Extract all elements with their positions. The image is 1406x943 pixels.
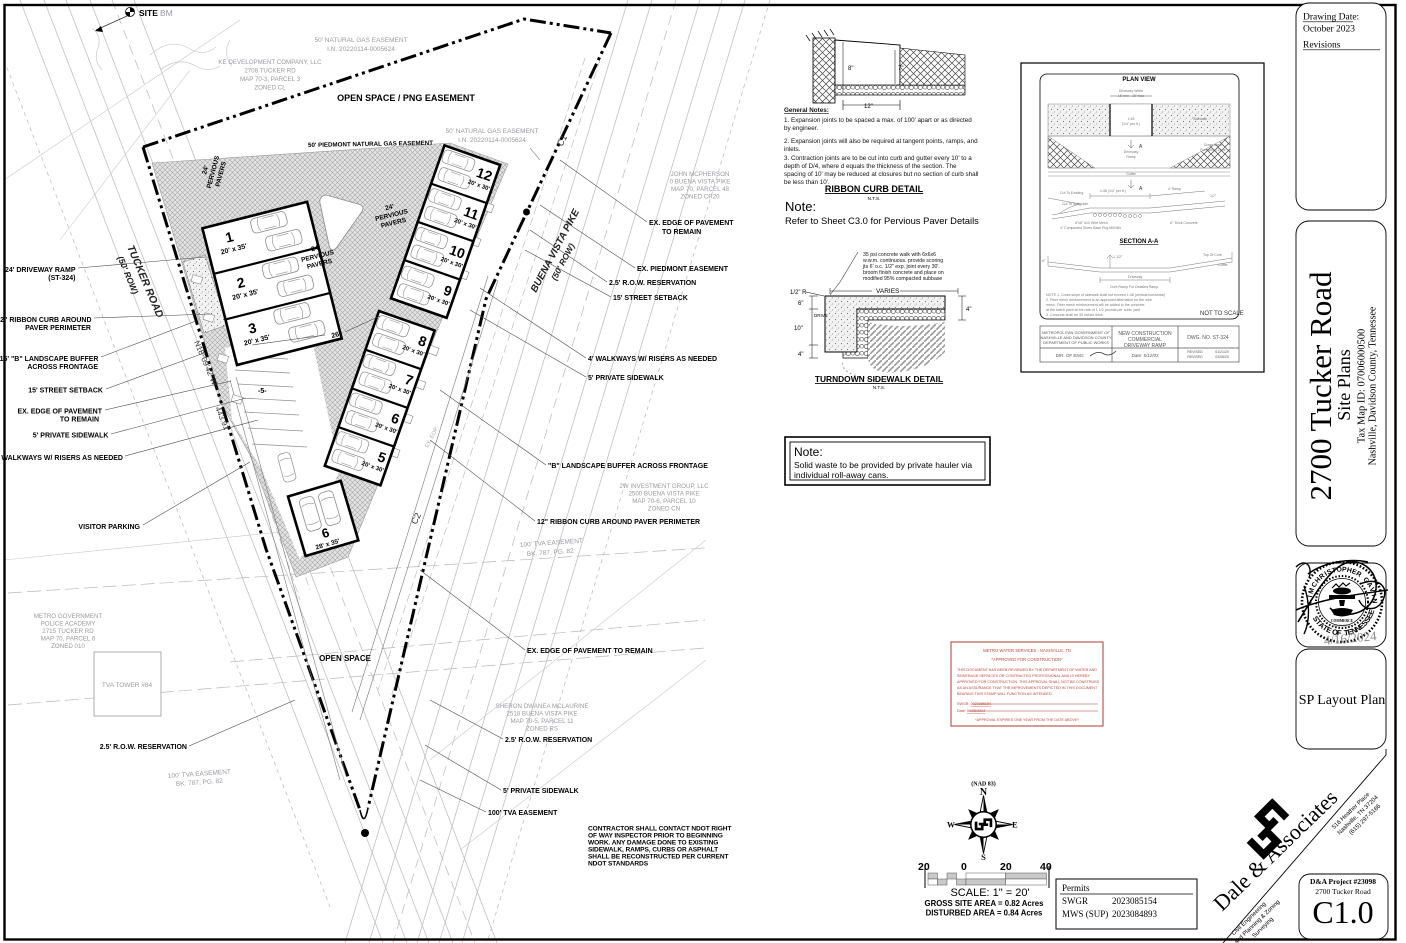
svg-text:OPEN SPACE / PNG EASEMENT: OPEN SPACE / PNG EASEMENT	[337, 93, 475, 103]
svg-text:-5-: -5-	[258, 388, 267, 395]
svg-text:individual roll-away cans.: individual roll-away cans.	[794, 470, 889, 480]
svg-text:4' WALKWAYS W/ RISERS AS NEEDE: 4' WALKWAYS W/ RISERS AS NEEDED	[588, 356, 717, 363]
svg-text:2. Fiber mesh reinforcement i: 2. Fiber mesh reinforcement is an approv…	[1046, 298, 1152, 302]
svg-text:MAP 70-6, PARCEL 10: MAP 70-6, PARCEL 10	[632, 498, 696, 505]
svg-text:AS AN ASSURANCE THAT THE IMPRO: AS AN ASSURANCE THAT THE IMPROVEMENTS DE…	[957, 686, 1098, 690]
svg-text:1/2": 1/2"	[1210, 194, 1217, 198]
svg-text:spacing of 10' may be reduced: spacing of 10' may be reduced at closure…	[784, 171, 978, 178]
svg-text:2.5' R.O.W. RESERVATION: 2.5' R.O.W. RESERVATION	[100, 744, 187, 751]
svg-text:DRIVEWAY RAMP: DRIVEWAY RAMP	[1124, 343, 1167, 349]
svg-text:2.5' R.O.W. RESERVATION: 2.5' R.O.W. RESERVATION	[609, 280, 696, 287]
svg-text:SHERON DWANEA MCLAURINE: SHERON DWANEA MCLAURINE	[496, 703, 589, 710]
svg-text:I.N. 20220114-0005624: I.N. 20220114-0005624	[327, 46, 395, 53]
svg-text:BM: BM	[160, 8, 173, 18]
svg-text:C1.0: C1.0	[1312, 894, 1373, 930]
svg-text:Driveway Width: Driveway Width	[1119, 89, 1143, 93]
svg-text:12" RIBBON CURB AROUND: 12" RIBBON CURB AROUND	[0, 317, 92, 324]
svg-text:MWS (SUP): MWS (SUP)	[1062, 909, 1108, 919]
svg-text:I.N. 20220114-0005624: I.N. 20220114-0005624	[458, 137, 526, 144]
svg-text:COMMERCE: COMMERCE	[1331, 619, 1354, 623]
svg-text:DIR. OF ENG:: DIR. OF ENG:	[1056, 353, 1085, 358]
svg-text:2023085154: 2023085154	[1112, 896, 1158, 906]
svg-text:JOHN MCPHERSON: JOHN MCPHERSON	[671, 171, 730, 178]
svg-text:Tax Map ID: 07006000500: Tax Map ID: 07006000500	[1357, 329, 1368, 443]
svg-text:THIS DOCUMENT HAS BEEN REVIEWE: THIS DOCUMENT HAS BEEN REVIEWED BY THE D…	[957, 668, 1097, 672]
svg-text:E: E	[1012, 820, 1018, 830]
svg-text:Revisions: Revisions	[1303, 41, 1341, 51]
svg-text:METRO GOVERNMENT: METRO GOVERNMENT	[34, 613, 103, 620]
svg-text:TVA TOWER #84: TVA TOWER #84	[102, 682, 153, 689]
svg-text:15' STREET SETBACK: 15' STREET SETBACK	[28, 388, 103, 395]
svg-text:N.T.S.: N.T.S.	[867, 196, 880, 202]
svg-text:Date: 5/12/03: Date: 5/12/03	[1131, 353, 1159, 358]
svg-text:GROSS SITE AREA = 0.82 Acres: GROSS SITE AREA = 0.82 Acres	[925, 899, 1045, 908]
svg-text:ACROSS FRONTAGE: ACROSS FRONTAGE	[27, 364, 98, 371]
svg-text:50' NATURAL GAS EASEMENT: 50' NATURAL GAS EASEMENT	[446, 128, 539, 135]
svg-text:October 2023: October 2023	[1303, 25, 1355, 35]
svg-text:KE DEVELOPMENT COMPANY, LLC: KE DEVELOPMENT COMPANY, LLC	[218, 59, 322, 66]
svg-text:mesh. Fiber mesh reinforcemen: mesh. Fiber mesh reinforcement will be a…	[1046, 303, 1144, 307]
svg-text:EX. EDGE OF PAVEMENT TO REMAIN: EX. EDGE OF PAVEMENT TO REMAIN	[527, 648, 653, 655]
svg-text:METRO WATER SERVICES - NASHVIL: METRO WATER SERVICES - NASHVILLE, TN	[983, 648, 1071, 653]
svg-text:Curb Ramp For Detailed Ramp: Curb Ramp For Detailed Ramp	[1110, 285, 1158, 289]
svg-text:DWG. NO. ST-324: DWG. NO. ST-324	[1187, 335, 1229, 341]
svg-text:by engineer.: by engineer.	[784, 125, 819, 132]
svg-text:50' NATURAL GAS EASEMENT: 50' NATURAL GAS EASEMENT	[315, 37, 408, 44]
svg-text:2. Expansion joints will also: 2. Expansion joints will also be require…	[784, 138, 978, 145]
svg-text:POLICE ACADEMY: POLICE ACADEMY	[41, 621, 96, 628]
svg-text:2518 BUENA VISTA PIKE: 2518 BUENA VISTA PIKE	[506, 711, 577, 718]
svg-text:WORK. ANY DAMAGE DONE TO EXIST: WORK. ANY DAMAGE DONE TO EXISTING	[588, 840, 718, 847]
svg-text:Cut To Subgrade: Cut To Subgrade	[1062, 202, 1088, 206]
svg-text:100' TVA EASEMENT: 100' TVA EASEMENT	[488, 810, 558, 817]
svg-text:5' PRIVATE SIDEWALK: 5' PRIVATE SIDEWALK	[588, 375, 664, 382]
svg-text:4": 4"	[966, 307, 971, 313]
svg-text:NOTE 1. Cross slope of sidew: NOTE 1. Cross slope of sidewalk shall no…	[1046, 293, 1165, 297]
svg-text:Sidewalk: Sidewalk	[1193, 117, 1207, 121]
svg-text:Top Of Curb: Top Of Curb	[1203, 253, 1222, 257]
svg-text:NDOT STANDARDS: NDOT STANDARDS	[588, 861, 649, 868]
svg-text:5' PRIVATE SIDEWALK: 5' PRIVATE SIDEWALK	[33, 433, 109, 440]
svg-text:6"x6" #10 Wire Mesh: 6"x6" #10 Wire Mesh	[1075, 221, 1108, 225]
svg-text:1/2" R: 1/2" R	[790, 290, 807, 296]
svg-text:ZONED 010: ZONED 010	[51, 643, 85, 650]
svg-text:MAP 70, PARCEL 6: MAP 70, PARCEL 6	[41, 636, 96, 643]
svg-text:3. Contraction joints are to: 3. Contraction joints are to be cut into…	[784, 155, 972, 162]
svg-text:N: N	[980, 787, 988, 798]
svg-text:Permits: Permits	[1062, 883, 1090, 893]
svg-text:EX. PIEDMONT EASEMENT: EX. PIEDMONT EASEMENT	[637, 266, 729, 273]
svg-text:01/21/20: 01/21/20	[1215, 350, 1229, 354]
svg-text:SEWERAGE SERVICES OR CONTRA: SEWERAGE SERVICES OR CONTRACTED PROFESSI…	[957, 674, 1091, 678]
svg-text:2023084893: 2023084893	[1112, 909, 1158, 919]
svg-text:REVISED: REVISED	[1187, 350, 1203, 354]
svg-text:12" RIBBON CURB AROUND PAVER P: 12" RIBBON CURB AROUND PAVER PERIMETER	[537, 519, 700, 526]
svg-text:40: 40	[1040, 861, 1052, 873]
svg-text:ZONED CL: ZONED CL	[254, 85, 286, 92]
svg-text:OF WAY INSPECTOR PRIOR TO BEGI: OF WAY INSPECTOR PRIOR TO BEGINNING	[588, 833, 723, 840]
svg-text:(1/4" per ft.): (1/4" per ft.)	[1122, 122, 1140, 126]
svg-text:N.T.S.: N.T.S.	[873, 385, 885, 390]
svg-text:ZONED CN: ZONED CN	[648, 506, 680, 513]
svg-text:15' min - 25' max: 15' min - 25' max	[1118, 94, 1145, 98]
svg-text:2.5' R.O.W. RESERVATION: 2.5' R.O.W. RESERVATION	[505, 737, 592, 744]
svg-text:8": 8"	[848, 66, 853, 72]
svg-text:6": 6"	[798, 301, 803, 307]
svg-text:Nashville, Davidson County, Te: Nashville, Davidson County, Tennessee	[1368, 306, 1379, 465]
svg-text:DRIVE: DRIVE	[814, 313, 828, 318]
svg-text:TO REMAIN: TO REMAIN	[60, 417, 99, 424]
svg-text:4": 4"	[798, 352, 803, 358]
svg-text:Grass Area/: Grass Area/	[1204, 143, 1223, 147]
svg-text:SITE: SITE	[139, 8, 158, 18]
svg-text:10": 10"	[794, 326, 803, 332]
svg-text:20: 20	[1000, 861, 1012, 873]
svg-text:ZONED RS: ZONED RS	[526, 726, 558, 733]
svg-text:2708 TUCKER RD: 2708 TUCKER RD	[244, 68, 296, 75]
svg-text:General Notes:: General Notes:	[784, 107, 829, 114]
svg-text:DISTURBED AREA = 0.84 Acres: DISTURBED AREA = 0.84 Acres	[926, 909, 1043, 918]
svg-text:SCALE: 1" = 20': SCALE: 1" = 20'	[950, 887, 1029, 899]
svg-text:Drawing Date:: Drawing Date:	[1303, 13, 1359, 23]
svg-text:OPEN SPACE: OPEN SPACE	[319, 654, 372, 663]
svg-text:12": 12"	[864, 104, 873, 110]
svg-text:Furnishing Zone: Furnishing Zone	[1200, 148, 1225, 152]
svg-text:3. Concrete shall be 35 inche: 3. Concrete shall be 35 inches thick.	[1046, 313, 1104, 317]
svg-text:modified 95% compacted subbase: modified 95% compacted subbase	[863, 276, 942, 282]
svg-text:BEARING THIS STAMP WILL FUNCTI: BEARING THIS STAMP WILL FUNCTION AS INTE…	[957, 692, 1053, 696]
svg-text:APPROVED FOR CONSTRUCTION. THI: APPROVED FOR CONSTRUCTION. THIS APPROVAL…	[957, 680, 1100, 684]
svg-text:TO REMAIN: TO REMAIN	[662, 229, 701, 236]
svg-text:6" Thick Concrete: 6" Thick Concrete	[1170, 221, 1198, 225]
svg-text:0 BUENA VISTA PIKE: 0 BUENA VISTA PIKE	[670, 179, 731, 186]
svg-text:Driveway: Driveway	[1128, 275, 1143, 279]
svg-text:(ST-324): (ST-324)	[48, 275, 75, 282]
svg-text:VISITOR PARKING: VISITOR PARKING	[78, 524, 140, 531]
svg-text:Cut To Existing: Cut To Existing	[1060, 191, 1083, 195]
svg-text:Site Plans: Site Plans	[1334, 349, 1354, 421]
svg-text:W: W	[947, 821, 955, 830]
svg-text:NOT TO SCALE: NOT TO SCALE	[1200, 311, 1244, 317]
svg-text:4' WALKWAYS W/ RISERS AS NEEDE: 4' WALKWAYS W/ RISERS AS NEEDED	[0, 455, 123, 462]
svg-text:Note:: Note:	[785, 199, 816, 214]
svg-text:MAP 70-3, PARCEL 3: MAP 70-3, PARCEL 3	[240, 76, 301, 83]
svg-text:Gutter: Gutter	[1126, 172, 1137, 176]
svg-text:DEPARTMENT OF PUBLIC WORKS: DEPARTMENT OF PUBLIC WORKS	[1043, 340, 1109, 345]
svg-text:4' Ramp: 4' Ramp	[1168, 187, 1181, 191]
svg-text:Driveway: Driveway	[1124, 150, 1139, 154]
svg-text:at the batch plant at the rate: at the batch plant at the rate of 1 1/2 …	[1046, 308, 1140, 312]
svg-text:"B" LANDSCAPE BUFFER ACROSS FR: "B" LANDSCAPE BUFFER ACROSS FRONTAGE	[548, 463, 708, 470]
svg-text:EX. EDGE OF PAVEMENT: EX. EDGE OF PAVEMENT	[649, 220, 734, 227]
svg-text:Solid waste to be provided by: Solid waste to be provided by private ha…	[794, 460, 972, 470]
svg-text:VARIES: VARIES	[876, 288, 900, 295]
svg-text:SHALL BE RECONSTRUCTED PER CUR: SHALL BE RECONSTRUCTED PER CURRENT	[588, 854, 729, 861]
svg-text:S: S	[981, 852, 986, 862]
svg-text:MAP 70, PARCEL 48: MAP 70, PARCEL 48	[671, 186, 730, 193]
svg-text:2500 BUENA VISTA PIKE: 2500 BUENA VISTA PIKE	[628, 491, 699, 498]
svg-text:Ramp: Ramp	[1126, 155, 1135, 159]
svg-text:SWGR: SWGR	[1062, 896, 1088, 906]
svg-text:20: 20	[918, 861, 930, 873]
svg-text:Note:: Note:	[794, 445, 823, 459]
svg-text:MAP 70-5, PARCEL 11: MAP 70-5, PARCEL 11	[510, 718, 574, 725]
svg-text:TURNDOWN SIDEWALK DETAIL: TURNDOWN SIDEWALK DETAIL	[815, 374, 943, 384]
svg-text:PLAN VIEW: PLAN VIEW	[1122, 77, 1156, 83]
svg-text:SP Layout Plan: SP Layout Plan	[1299, 693, 1386, 708]
svg-text:ZONED CR20: ZONED CR20	[680, 194, 720, 201]
svg-text:0: 0	[961, 861, 967, 873]
svg-text:1-1/2": 1-1/2"	[1113, 255, 1123, 259]
svg-text:1:48 (1/4" per ft.): 1:48 (1/4" per ft.)	[1100, 189, 1126, 193]
svg-text:03/08/20: 03/08/20	[1215, 355, 1229, 359]
svg-text:*APPROVAL EXPIRES ONE YEAR FRO: *APPROVAL EXPIRES ONE YEAR FROM THE DATE…	[975, 718, 1079, 722]
svg-text:inlets.: inlets.	[784, 146, 801, 153]
svg-text:2715 TUCKER RD: 2715 TUCKER RD	[42, 628, 94, 635]
svg-text:be less than 10'.: be less than 10'.	[784, 179, 830, 186]
svg-text:*APPROVED FOR CONSTRUCTION*: *APPROVED FOR CONSTRUCTION*	[991, 657, 1063, 662]
svg-text:D&A Project #23098: D&A Project #23098	[1310, 877, 1376, 886]
svg-text:SIDEWALK, RAMPS, CURBS OR ASPH: SIDEWALK, RAMPS, CURBS OR ASPHALT	[588, 847, 718, 854]
svg-text:Refer to Sheet C3.0 for Pervio: Refer to Sheet C3.0 for Pervious Paver D…	[785, 215, 979, 226]
svg-text:15' STREET SETBACK: 15' STREET SETBACK	[613, 295, 688, 302]
svg-text:7": 7"	[898, 66, 903, 72]
svg-text:1. Expansion joints to be spa: 1. Expansion joints to be spaced a max. …	[784, 117, 972, 124]
svg-text:Gutter: Gutter	[1218, 263, 1229, 267]
svg-text:REVISED: REVISED	[1187, 355, 1203, 359]
svg-text:15' "B" LANDSCAPE BUFFER: 15' "B" LANDSCAPE BUFFER	[0, 356, 99, 363]
svg-text:24' DRIVEWAY RAMP: 24' DRIVEWAY RAMP	[5, 267, 76, 274]
svg-text:4" Compacted Stone Base Pug Mi: 4" Compacted Stone Base Pug Mill Mix	[1060, 226, 1121, 230]
svg-text:2700 Tucker Road: 2700 Tucker Road	[1303, 271, 1338, 501]
svg-text:RIBBON CURB DETAIL: RIBBON CURB DETAIL	[825, 184, 924, 194]
svg-text:5' PRIVATE SIDEWALK: 5' PRIVATE SIDEWALK	[503, 788, 579, 795]
svg-text:SECTION A-A: SECTION A-A	[1120, 239, 1159, 245]
svg-text:2W INVESTMENT GROUP, LLC: 2W INVESTMENT GROUP, LLC	[619, 483, 709, 490]
svg-text:PAVER PERIMETER: PAVER PERIMETER	[25, 325, 91, 332]
svg-text:CONTRACTOR SHALL CONTACT NDOT: CONTRACTOR SHALL CONTACT NDOT RIGHT	[588, 826, 731, 833]
svg-text:depth of D/4, where d equals t: depth of D/4, where d equals the thickne…	[784, 163, 957, 170]
svg-text:No. 0410726: No. 0410726	[1334, 624, 1351, 628]
svg-text:1:48: 1:48	[1128, 117, 1135, 121]
svg-text:EX. EDGE OF PAVEMENT: EX. EDGE OF PAVEMENT	[17, 409, 102, 416]
